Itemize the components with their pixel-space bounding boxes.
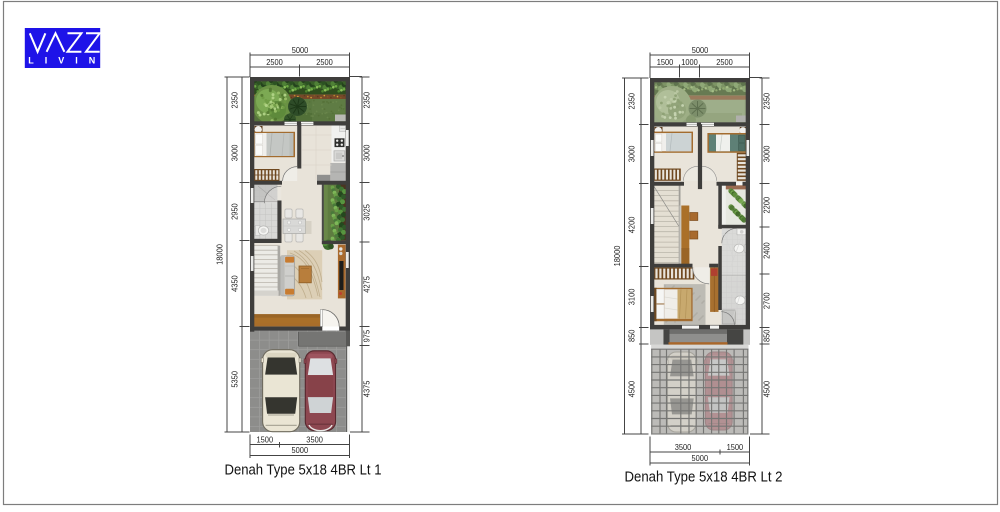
svg-text:2950: 2950 [230, 203, 239, 220]
svg-text:2400: 2400 [762, 242, 771, 259]
svg-text:4200: 4200 [628, 216, 637, 233]
svg-text:1000: 1000 [681, 58, 698, 67]
svg-text:2350: 2350 [230, 91, 239, 108]
svg-text:4500: 4500 [628, 380, 637, 397]
svg-text:3000: 3000 [628, 145, 637, 162]
svg-text:3000: 3000 [230, 144, 239, 161]
svg-text:2500: 2500 [266, 58, 283, 67]
svg-text:1500: 1500 [657, 58, 674, 67]
svg-text:18000: 18000 [215, 243, 224, 264]
svg-text:2700: 2700 [762, 292, 771, 309]
svg-text:850: 850 [628, 329, 637, 342]
svg-text:1500: 1500 [727, 443, 744, 452]
svg-text:3100: 3100 [628, 288, 637, 305]
svg-text:1500: 1500 [257, 436, 274, 445]
svg-text:4275: 4275 [362, 275, 371, 292]
svg-text:850: 850 [762, 329, 771, 342]
svg-text:18000: 18000 [613, 245, 622, 266]
svg-text:4500: 4500 [762, 380, 771, 397]
svg-text:2350: 2350 [362, 91, 371, 108]
svg-text:3025: 3025 [362, 203, 371, 220]
svg-text:Denah Type 5x18 4BR Lt 1: Denah Type 5x18 4BR Lt 1 [225, 463, 382, 479]
svg-text:2500: 2500 [316, 58, 333, 67]
svg-text:2500: 2500 [716, 58, 733, 67]
svg-text:5000: 5000 [292, 446, 309, 455]
svg-text:5000: 5000 [292, 46, 309, 55]
svg-text:5000: 5000 [692, 46, 709, 55]
svg-text:5000: 5000 [692, 454, 709, 463]
svg-text:3500: 3500 [675, 443, 692, 452]
svg-text:4375: 4375 [362, 380, 371, 397]
svg-text:5350: 5350 [230, 370, 239, 387]
svg-text:3000: 3000 [762, 145, 771, 162]
svg-text:975: 975 [362, 329, 371, 342]
svg-text:3000: 3000 [362, 144, 371, 161]
svg-text:Denah Type 5x18 4BR Lt 2: Denah Type 5x18 4BR Lt 2 [625, 470, 783, 486]
svg-text:2350: 2350 [762, 92, 771, 109]
svg-text:2350: 2350 [628, 92, 637, 109]
svg-text:4350: 4350 [230, 275, 239, 292]
svg-text:3500: 3500 [306, 436, 323, 445]
svg-text:2200: 2200 [762, 196, 771, 213]
